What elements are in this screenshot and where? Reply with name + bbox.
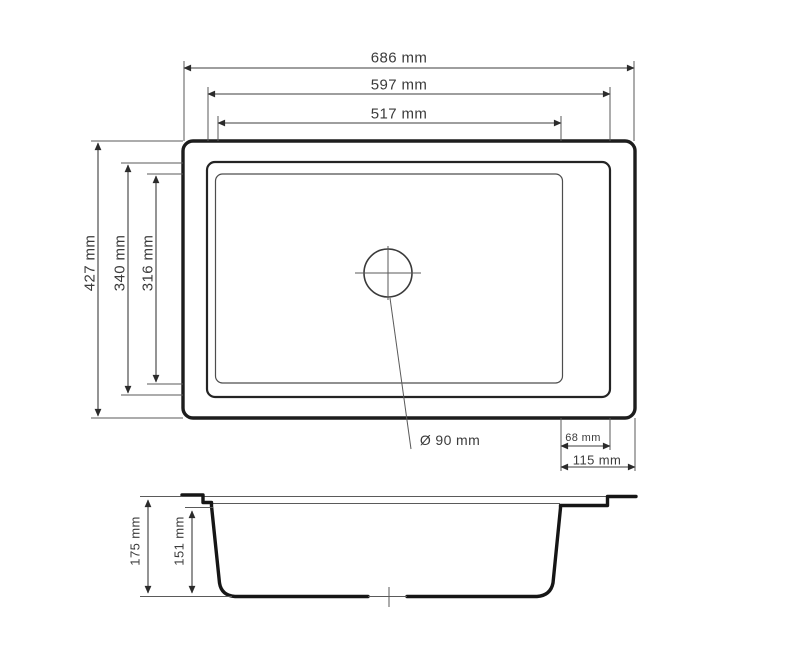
dimension-outer-width — [184, 61, 634, 141]
dim-label-right-inset-outer: 115 mm — [573, 453, 621, 468]
section-profile-right — [407, 497, 636, 597]
top-view — [91, 61, 635, 471]
dim-label-right-inset-rim: 68 mm — [565, 432, 601, 444]
dim-label-total-height: 175 mm — [128, 516, 143, 565]
dim-label-bowl-width: 517 mm — [371, 106, 428, 123]
sink-drawing-svg — [0, 0, 800, 658]
technical-drawing-canvas: 686 mm 597 mm 517 mm 427 mm 340 mm 316 m… — [0, 0, 800, 658]
side-view — [140, 495, 636, 607]
dimension-bowl-height — [185, 508, 213, 594]
dim-label-outer-depth: 427 mm — [82, 235, 99, 292]
dimension-outer-depth — [91, 141, 183, 418]
sink-outer-outline — [183, 141, 635, 418]
dim-label-outer-width: 686 mm — [371, 50, 428, 67]
dim-label-rim-width: 597 mm — [371, 77, 428, 94]
dim-label-bowl-height: 151 mm — [172, 516, 187, 565]
dim-label-rim-depth: 340 mm — [112, 235, 129, 292]
dim-label-drain-diameter: Ø 90 mm — [420, 432, 480, 448]
section-profile-left — [182, 495, 368, 597]
dim-label-bowl-depth: 316 mm — [140, 235, 157, 292]
